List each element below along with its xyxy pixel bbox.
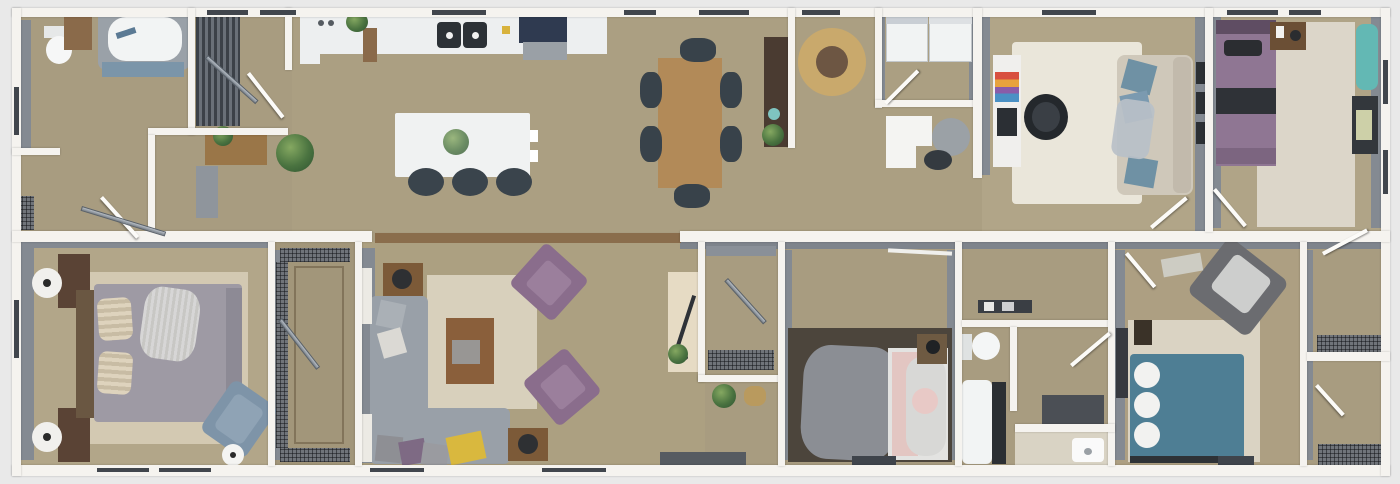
stool-1 <box>408 168 444 196</box>
sideboard-plant <box>762 124 784 146</box>
entry-bench <box>196 166 218 218</box>
wall-laundry-left <box>875 8 882 108</box>
wall-bath2-stub <box>1010 327 1017 411</box>
bed4-pillow-3 <box>1134 422 1160 448</box>
bedroom2-console-art <box>1356 110 1372 140</box>
wall-mid-right <box>680 231 1390 242</box>
window-living-bottom-1 <box>368 466 426 474</box>
console-plant <box>668 344 688 364</box>
island-handle-1 <box>530 130 538 142</box>
wall-master-closet <box>268 242 275 466</box>
hall-photo-1 <box>984 302 994 311</box>
window-bed2-right-2 <box>1381 148 1390 196</box>
wall-dining-mud <box>788 8 795 148</box>
corner-cabinet <box>300 16 320 64</box>
nook-chair <box>924 150 952 170</box>
office-desk-books <box>995 72 1019 102</box>
wall-closetb-bottom <box>698 375 780 382</box>
bed3-pillow-giant <box>799 344 901 463</box>
island-handle-2 <box>530 150 538 162</box>
window-living-bottom-2 <box>540 466 608 474</box>
wall-bath2-top <box>962 320 1112 327</box>
window-bed2-right-1 <box>1381 58 1390 106</box>
stool-2 <box>452 168 488 196</box>
teal-pouf <box>1356 24 1378 90</box>
bath2-sink-drain <box>1084 448 1092 455</box>
cabinet-wood-edge <box>363 28 377 62</box>
office-chair-cushion <box>1032 102 1060 132</box>
wall-living-closetb <box>698 242 705 382</box>
tub-2-edge <box>992 382 1006 464</box>
tub-basin <box>108 17 182 61</box>
doormat-back-door <box>660 452 746 466</box>
bed4-pillow-1 <box>1134 362 1160 388</box>
window-top-closeta-1 <box>205 8 250 17</box>
wall-office-bed2 <box>1205 8 1213 232</box>
art-frame-3 <box>1196 122 1205 144</box>
bed2-pillow-dark <box>1224 40 1262 56</box>
wall-frame-1 <box>362 268 372 324</box>
window-mudroom <box>800 8 842 17</box>
wall-left <box>12 8 21 476</box>
closetb-shelf <box>708 350 774 370</box>
sink-drain-1 <box>446 32 453 39</box>
side-table-b-tray <box>518 434 538 454</box>
wall-bath-bottom <box>12 148 60 155</box>
closet-r2-shelf <box>1318 444 1386 466</box>
wic-floor-border <box>294 266 344 444</box>
bed4-nightstand <box>1134 320 1152 345</box>
wic-shelf-bottom <box>280 448 350 462</box>
window-bath-left <box>12 85 21 137</box>
counter-item-yellow <box>502 26 510 34</box>
entry-plant-large <box>276 134 314 172</box>
wall-closeta-bottom <box>148 128 288 135</box>
wic-shelf-left <box>276 262 288 448</box>
dining-chair-r1 <box>720 72 742 108</box>
master-pillow-1 <box>97 297 134 341</box>
wall-mid-left <box>12 231 372 242</box>
master-pillow-2 <box>97 351 134 395</box>
wall-entry-left <box>148 135 155 231</box>
dining-chair-l2 <box>640 126 662 162</box>
dining-chair-top <box>680 38 716 62</box>
bed4-pillow-2 <box>1134 392 1160 418</box>
wall-closetb-bed3 <box>778 242 785 466</box>
sofa-throw-gray <box>1110 98 1156 161</box>
sofa-pillow-blue-3 <box>1124 156 1158 189</box>
tub-2 <box>962 380 992 464</box>
wall-vanity-ledge <box>1015 424 1115 432</box>
window-dining-2 <box>697 8 751 17</box>
hall-plant <box>712 384 736 408</box>
bed3-pillow-round <box>912 388 938 414</box>
window-bedroom2-1 <box>1225 8 1280 17</box>
window-bedroom2-2 <box>1287 8 1323 17</box>
window-master-bottom-1 <box>95 466 151 474</box>
island-plant <box>443 129 469 155</box>
window-kitchen-sink <box>430 8 488 17</box>
wall-bed4-closets <box>1300 242 1307 466</box>
toilet-tank-2 <box>962 334 972 360</box>
window-office <box>1040 8 1098 17</box>
hall-photo-2 <box>1002 302 1014 311</box>
dining-chair-r2 <box>720 126 742 162</box>
face-bathroom-left <box>21 20 31 150</box>
floor-lamp-master-dot <box>230 452 236 458</box>
wall-bath2-bed4 <box>1108 242 1115 466</box>
dryer-controls <box>929 16 972 24</box>
floor-plan-render <box>0 0 1400 484</box>
lamp-master-2-top <box>43 433 51 441</box>
face-bottom-rooms-top <box>680 242 1390 249</box>
window-master-bottom-2 <box>157 466 213 474</box>
bed4-dresser <box>1116 328 1128 398</box>
window-dining-1 <box>622 8 658 17</box>
lamp-bed3 <box>926 340 940 354</box>
sect-pillow-plaid-1 <box>376 300 407 331</box>
dining-chair-bottom <box>674 184 710 208</box>
window-top-closeta-2 <box>258 8 298 17</box>
art-frame-1 <box>1196 62 1205 84</box>
bath-mat-blue <box>102 62 184 77</box>
wall-laundry-office <box>973 8 982 178</box>
closetb-shelf-top <box>706 246 776 256</box>
nightstand-bed2-clock <box>1290 30 1301 41</box>
rug-jute-center <box>816 46 848 78</box>
counter-faucet-2 <box>328 20 334 26</box>
sideboard-vase-1 <box>768 108 780 120</box>
wall-bath-closet <box>188 8 195 135</box>
wall-bed3-right <box>955 242 962 466</box>
lamp-master-1-top <box>43 279 51 287</box>
side-table-a-tray <box>392 269 412 289</box>
art-frame-2 <box>1196 92 1205 114</box>
hall-basket <box>744 386 766 406</box>
sect-pillow-plaid-2 <box>421 442 450 467</box>
sink-drain-2 <box>472 32 479 39</box>
counter-faucet-1 <box>318 20 324 26</box>
stool-3 <box>496 168 532 196</box>
wall-bottom <box>12 465 1390 476</box>
washer-controls <box>886 16 928 24</box>
wall-closets-divider <box>1307 352 1390 361</box>
office-desk-monitor <box>997 108 1017 136</box>
wall-closet-living <box>355 242 362 466</box>
dining-chair-l1 <box>640 72 662 108</box>
bed2-foot-fold <box>1216 148 1276 164</box>
range <box>523 42 567 60</box>
nook-desk-return <box>886 146 916 168</box>
nightstand-bed2-item <box>1276 26 1284 38</box>
dining-table <box>658 58 722 188</box>
wall-frame-2 <box>362 414 372 462</box>
wic-shelf-top <box>280 248 350 262</box>
face-office-west <box>982 10 990 175</box>
coffee-table-tray <box>452 340 480 364</box>
carpet-transition <box>375 233 681 243</box>
window-master-left <box>12 298 21 360</box>
face-master-top <box>12 242 268 248</box>
toilet-bowl-2 <box>972 332 1000 360</box>
bed2-blanket-band <box>1216 88 1276 114</box>
nook-desk <box>886 116 932 146</box>
master-headboard <box>76 290 96 418</box>
wall-kitchen-left <box>285 8 292 70</box>
office-sofa-back <box>1173 57 1191 193</box>
